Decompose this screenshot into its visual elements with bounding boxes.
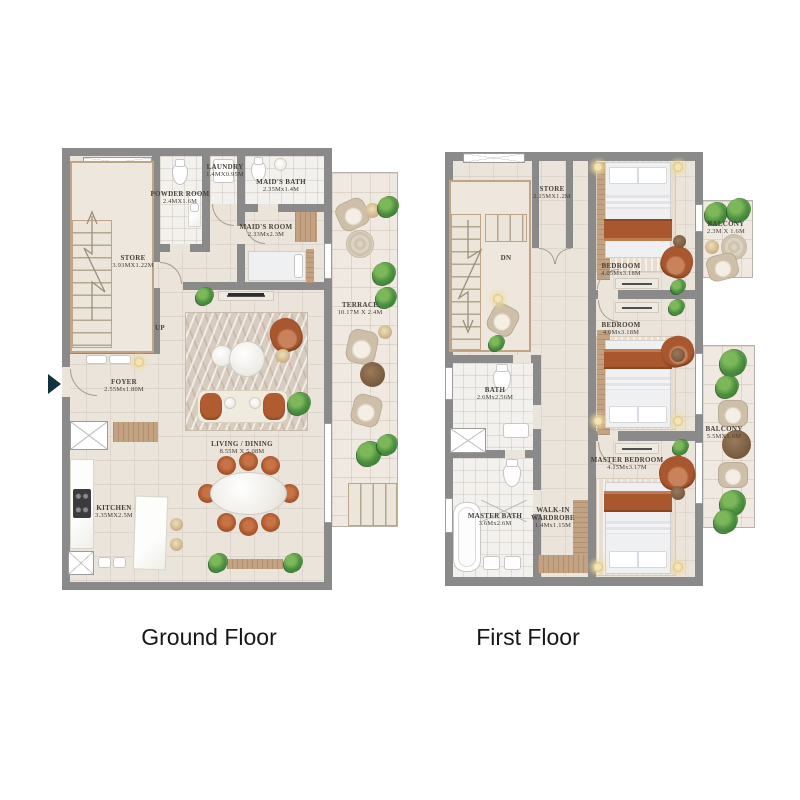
room-label-balcony-2: BALCONY 5.5MX1.6M	[705, 425, 742, 441]
bath-vanity	[503, 423, 529, 438]
plant	[673, 440, 688, 455]
room-label-maids-room: MAID'S ROOM 2.33Mx2.3M	[240, 223, 293, 239]
bed-throw	[604, 219, 672, 241]
coffee-table	[229, 341, 265, 377]
room-dims: 1.4Mx1.15M	[528, 522, 578, 530]
bed-headboard	[306, 249, 314, 283]
basin	[274, 158, 287, 171]
ground-floor-plan: STORE 3.93MX1.22M POWDER ROOM 2.4MX1.6M …	[60, 145, 400, 593]
lamp	[673, 562, 683, 572]
plant	[378, 197, 398, 217]
entry-opening	[62, 367, 70, 397]
side-table	[705, 240, 719, 254]
door-opening	[505, 450, 525, 458]
pillows	[609, 167, 667, 184]
dining-chair	[261, 513, 280, 532]
stairs-direction: DN	[501, 254, 512, 262]
wall	[588, 160, 596, 578]
room-label-maids-bath: MAID'S BATH 2.35Mx1.4M	[256, 178, 306, 194]
room-name: BALCONY	[705, 425, 742, 433]
dresser	[615, 278, 659, 289]
terrace-outdoor-stairs	[348, 483, 397, 526]
wardrobe	[295, 212, 317, 242]
balcony-door-window	[695, 204, 703, 232]
room-name: MASTER BEDROOM	[591, 456, 664, 464]
dining-chair	[217, 456, 236, 475]
room-dims: 3.6Mx2.6M	[468, 520, 522, 528]
wall	[324, 148, 332, 590]
foyer-cabinet	[86, 355, 107, 364]
lamp	[593, 162, 603, 172]
room-label-bedroom-1: BEDROOM 4.05Mx3.18M	[601, 262, 641, 278]
room-name: STORE	[112, 254, 153, 262]
bed-throw	[604, 491, 672, 512]
dining-chair	[261, 456, 280, 475]
wall	[533, 355, 541, 450]
room-name: BEDROOM	[601, 262, 641, 270]
wall	[245, 204, 324, 212]
shaft	[68, 551, 94, 575]
wall	[445, 577, 701, 586]
kitchen-sink	[113, 557, 126, 568]
cooktop	[73, 489, 91, 518]
room-dims: 4.05Mx3.18M	[601, 270, 641, 278]
stool	[170, 538, 183, 551]
room-label-laundry: LAUNDRY 1.4MX0.95M	[206, 163, 244, 179]
room-label-store: STORE 2.15MX1.2M	[533, 185, 571, 201]
plant	[489, 336, 504, 351]
side-table	[671, 348, 685, 362]
master-vanity-sink	[504, 556, 521, 570]
dining-chair	[239, 517, 258, 536]
side-table	[673, 235, 686, 248]
room-dims: 3.93MX1.22M	[112, 262, 153, 270]
room-label-foyer: FOYER 2.55Mx1.80M	[104, 378, 144, 394]
ground-floor-title: Ground Floor	[141, 624, 277, 651]
room-name: BALCONY	[707, 220, 745, 228]
outdoor-table	[360, 362, 385, 387]
plant	[671, 280, 685, 294]
room-label-terrace: TERRACE 10.17M X 2.4M	[338, 301, 383, 317]
kitchen-cabinet	[113, 422, 158, 442]
stairs-direction-arrow	[72, 170, 112, 330]
kitchen-sink	[98, 557, 111, 568]
window	[324, 243, 332, 279]
lamp	[593, 562, 603, 572]
lamp	[493, 294, 503, 304]
window	[695, 353, 703, 415]
pillows	[609, 406, 667, 423]
room-name: MAID'S ROOM	[240, 223, 293, 231]
room-label-balcony-1: BALCONY 2.3M X 1.6M	[707, 220, 745, 236]
side-table	[671, 486, 685, 500]
room-name: BATH	[477, 386, 513, 394]
room-dims: 5.5MX1.6M	[705, 433, 742, 441]
shaft	[70, 421, 108, 450]
bed	[605, 162, 671, 258]
first-floor-title: First Floor	[476, 624, 580, 651]
room-label-store: STORE 3.93MX1.22M	[112, 254, 153, 270]
master-vanity-sink	[483, 556, 500, 570]
window	[445, 367, 453, 400]
bed-sheet	[606, 521, 670, 534]
dining-table	[210, 472, 287, 515]
walk-in-wardrobe-cabinets	[538, 555, 588, 573]
staircase-treads	[485, 214, 527, 242]
bed-sheet	[606, 195, 670, 209]
plant	[716, 376, 738, 398]
window	[445, 498, 453, 533]
terrace-door-window	[324, 423, 332, 523]
shaft	[450, 428, 486, 453]
outdoor-chair	[718, 462, 748, 488]
room-name: BEDROOM	[601, 321, 640, 329]
room-dims: 10.17M X 2.4M	[338, 309, 383, 317]
side-table	[276, 349, 290, 363]
room-label-walk-in-wardrobe: WALK-IN WARDROBE 1.4Mx1.15M	[528, 506, 578, 530]
sofa-cushion	[263, 393, 285, 420]
lamp	[673, 162, 683, 172]
room-dims: 3.35MX2.5M	[95, 512, 133, 520]
room-dims: 2.35Mx1.4M	[256, 186, 306, 194]
room-name: LAUNDRY	[206, 163, 244, 171]
plant	[373, 263, 395, 285]
plant	[714, 510, 737, 533]
plant	[209, 554, 227, 572]
foyer-lamp	[134, 357, 144, 367]
room-dims: 8.55M X 5.08M	[211, 448, 273, 456]
window	[463, 153, 525, 163]
room-label-master-bath: MASTER BATH 3.6Mx2.6M	[468, 512, 522, 528]
first-floor-plan: STORE 2.15MX1.2M DN BEDROOM 4.05Mx3.18M …	[443, 150, 758, 590]
foyer-cabinet	[109, 355, 131, 364]
bed	[605, 482, 671, 574]
sofa-pillow	[249, 397, 261, 409]
wall	[532, 160, 539, 248]
room-name: MAID'S BATH	[256, 178, 306, 186]
dresser	[615, 302, 659, 313]
room-name: STORE	[533, 185, 571, 193]
wall	[566, 160, 573, 248]
room-name: LIVING / DINING	[211, 440, 273, 448]
wall	[237, 244, 245, 282]
room-name: WALK-IN WARDROBE	[528, 506, 578, 522]
wall	[62, 582, 332, 590]
entry-arrow-icon	[48, 374, 61, 394]
door-opening	[598, 290, 618, 299]
room-label-living-dining: LIVING / DINING 8.55M X 5.08M	[211, 440, 273, 456]
room-dims: 2.15MX1.2M	[533, 193, 571, 201]
dresser	[615, 443, 659, 454]
wall	[62, 148, 332, 156]
room-dims: 2.3M X 1.6M	[707, 228, 745, 236]
plant	[284, 554, 302, 572]
lamp	[593, 416, 603, 426]
room-dims: 1.4MX0.95M	[206, 171, 244, 179]
room-label-powder-room: POWDER ROOM 2.4MX1.6M	[150, 190, 209, 206]
kitchen-island	[133, 495, 169, 570]
bed-sheet	[606, 377, 670, 390]
bench	[227, 559, 283, 569]
sofa-pillow	[224, 397, 236, 409]
room-name: POWDER ROOM	[150, 190, 209, 198]
outdoor-chair	[718, 400, 748, 427]
door-opening	[513, 355, 531, 363]
plant	[377, 435, 397, 455]
door-opening	[258, 204, 278, 212]
door-opening	[533, 405, 541, 429]
plant	[196, 288, 213, 305]
pillow	[294, 254, 303, 278]
room-dims: 4.0Mx3.18M	[601, 329, 640, 337]
room-label-bath: BATH 2.6Mx2.56M	[477, 386, 513, 402]
stairs-direction-arrow	[451, 210, 485, 350]
sofa-cushion	[200, 393, 222, 420]
tv	[228, 293, 264, 296]
stairs-label-up: UP	[155, 324, 165, 332]
room-dims: 2.55Mx1.80M	[104, 386, 144, 394]
pillows	[609, 551, 667, 568]
room-name: FOYER	[104, 378, 144, 386]
room-label-kitchen: KITCHEN 3.35MX2.5M	[95, 504, 133, 520]
room-name: MASTER BATH	[468, 512, 522, 520]
dining-chair	[217, 513, 236, 532]
room-name: TERRACE	[338, 301, 383, 309]
stool	[170, 518, 183, 531]
plant	[669, 300, 684, 315]
room-dims: 4.15Mx3.17M	[591, 464, 664, 472]
door-opening	[170, 244, 190, 252]
room-dims: 2.6Mx2.56M	[477, 394, 513, 402]
lamp	[673, 416, 683, 426]
room-dims: 2.33Mx2.3M	[240, 231, 293, 239]
room-label-bedroom-2: BEDROOM 4.0Mx3.18M	[601, 321, 640, 337]
side-table	[378, 325, 392, 339]
stairs-label-dn: DN	[501, 254, 512, 262]
outdoor-rug	[346, 230, 374, 258]
floorplan-page: STORE 3.93MX1.22M POWDER ROOM 2.4MX1.6M …	[0, 0, 800, 800]
room-label-master-bedroom: MASTER BEDROOM 4.15Mx3.17M	[591, 456, 664, 472]
window	[695, 442, 703, 504]
stairs-direction: UP	[155, 324, 165, 332]
plant	[727, 199, 750, 222]
room-dims: 2.4MX1.6M	[150, 198, 209, 206]
room-name: KITCHEN	[95, 504, 133, 512]
plant	[288, 393, 310, 415]
plant	[720, 350, 746, 376]
